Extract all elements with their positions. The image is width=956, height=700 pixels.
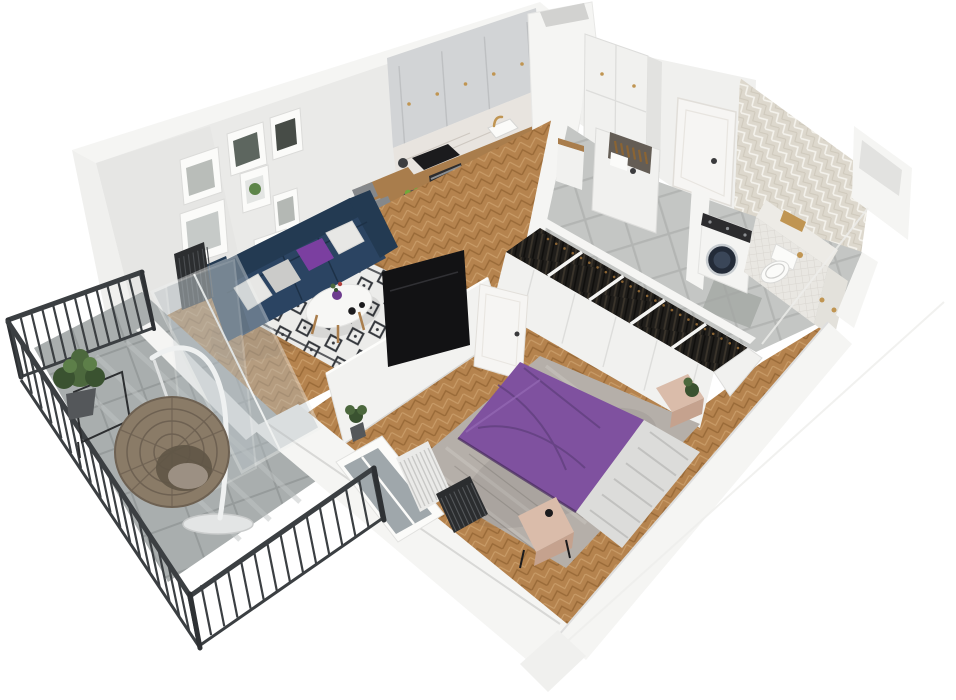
table-decor [348, 307, 356, 315]
kettle [398, 158, 408, 168]
table-decor [359, 302, 365, 308]
bedroom-door-handle [515, 332, 520, 337]
apartment-render-canvas [0, 0, 956, 700]
nightstand-lamp [545, 509, 553, 517]
frame-art-plant [249, 183, 261, 195]
shoe-cabinet-knob [630, 168, 636, 174]
balcony-plant [63, 359, 77, 373]
egg-chair-cushion [168, 463, 208, 489]
washer-drum-inner [714, 252, 731, 269]
entry-door-handle [711, 158, 717, 164]
corner-plant [357, 405, 367, 415]
flowers [331, 284, 336, 289]
nightstand-plant [684, 378, 693, 387]
balcony-plant [83, 357, 97, 371]
toilet-paper-holder [797, 252, 803, 258]
apartment-3d-floorplan-render [0, 0, 956, 700]
corner-plant [345, 405, 355, 415]
flowers [338, 282, 342, 286]
flowers [334, 288, 338, 292]
